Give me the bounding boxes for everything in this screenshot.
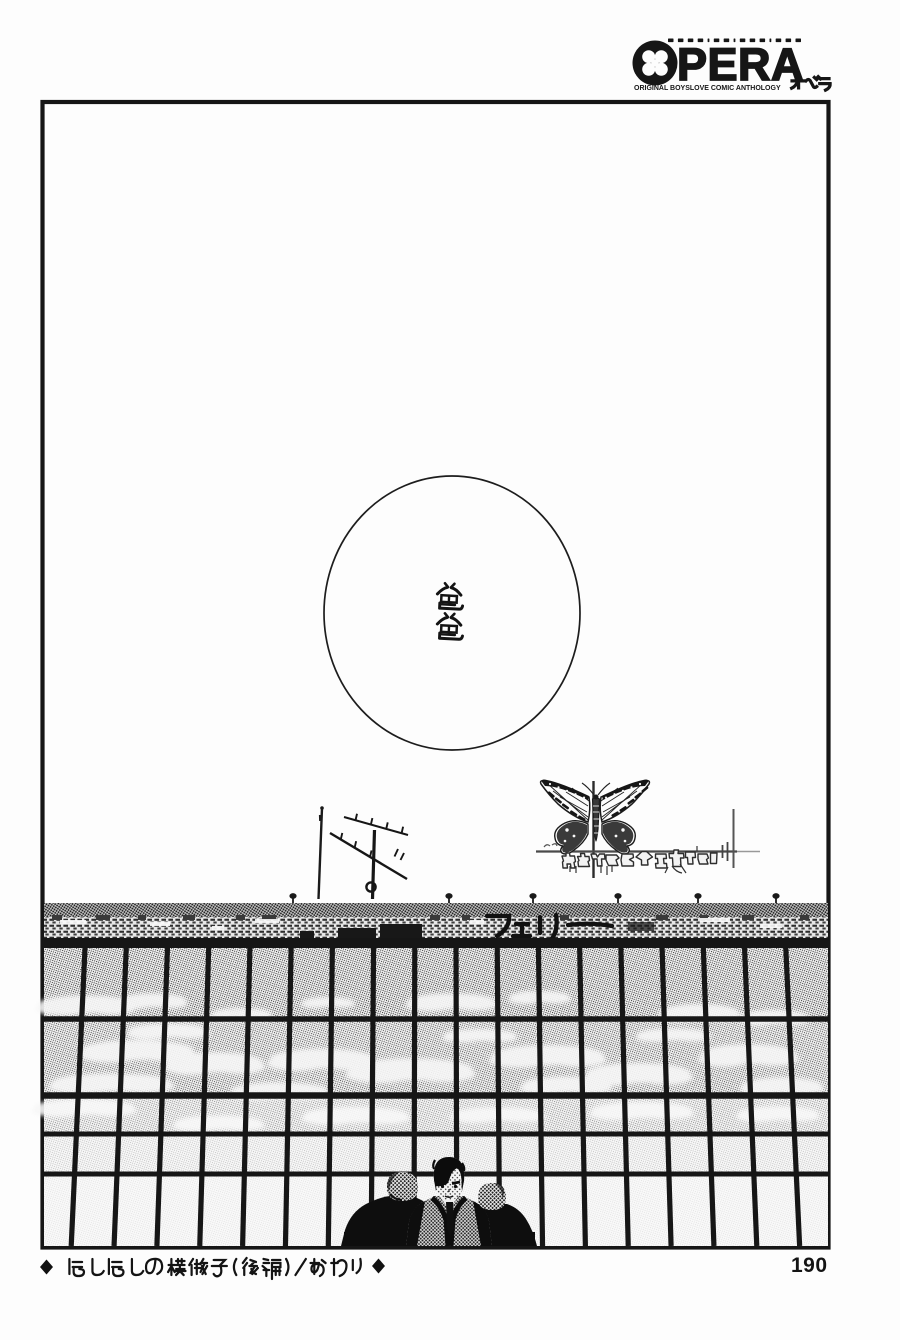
svg-text:190: 190 bbox=[791, 1254, 828, 1277]
svg-text:ORIGINAL BOYSLOVE COMIC ANTHOL: ORIGINAL BOYSLOVE COMIC ANTHOLOGY bbox=[634, 85, 781, 92]
svg-text:PERA: PERA bbox=[677, 39, 804, 90]
